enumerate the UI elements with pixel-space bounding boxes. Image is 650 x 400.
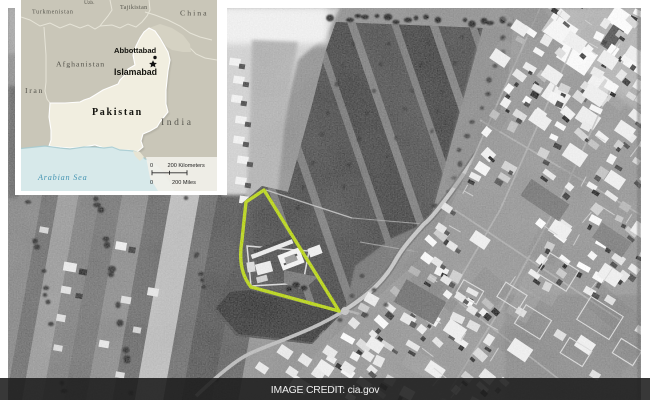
- svg-text:200 Miles: 200 Miles: [172, 180, 196, 186]
- svg-text:Uzb.: Uzb.: [84, 0, 95, 6]
- svg-text:200 Kilometers: 200 Kilometers: [168, 163, 206, 169]
- svg-text:India: India: [161, 118, 194, 128]
- svg-text:Iran: Iran: [25, 86, 44, 95]
- svg-text:Arabian Sea: Arabian Sea: [37, 173, 88, 182]
- svg-text:Turkmenistan: Turkmenistan: [32, 10, 74, 16]
- svg-text:Pakistan: Pakistan: [92, 107, 143, 118]
- svg-text:0: 0: [150, 180, 153, 186]
- svg-text:Tajikistan: Tajikistan: [120, 5, 148, 11]
- svg-text:IMAGE CREDIT: cia.gov: IMAGE CREDIT: cia.gov: [271, 385, 380, 396]
- svg-text:China: China: [180, 9, 209, 18]
- svg-text:Afghanistan: Afghanistan: [56, 60, 105, 69]
- svg-text:Islamabad: Islamabad: [114, 67, 157, 77]
- svg-text:Abbottabad: Abbottabad: [114, 46, 157, 55]
- svg-text:0: 0: [150, 163, 153, 169]
